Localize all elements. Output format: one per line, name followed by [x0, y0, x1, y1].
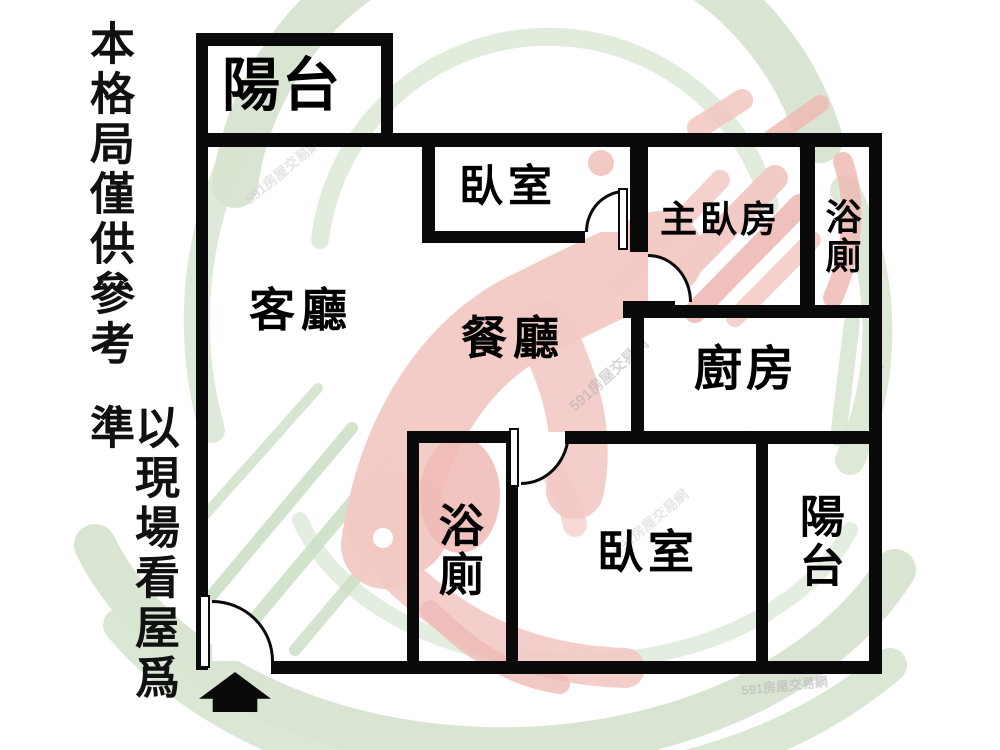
entrance-door-leaf [199, 595, 210, 668]
disclaimer-line-2: 以現場看屋爲準 [85, 404, 175, 750]
hall-door-leaf [509, 428, 519, 487]
wall-balcony-bottom-left [756, 443, 768, 673]
wall-balcony-top [196, 33, 393, 46]
room-label-balcony-top: 陽台 [222, 56, 342, 116]
room-label-living: 客廳 [249, 287, 353, 335]
wall-bedroom-top-right [630, 147, 648, 252]
bedroom-top-door-leaf [618, 188, 628, 250]
wall-balcony-left [196, 33, 208, 145]
room-label-master-bedroom: 主臥房 [660, 202, 780, 240]
wall-left [196, 133, 208, 670]
wall-kitchen-bottom [565, 431, 882, 444]
room-label-bath-top: 浴廁 [821, 198, 858, 276]
wall-bottom [271, 661, 882, 674]
wall-right [869, 133, 882, 674]
room-label-balcony-bottom: 陽台 [794, 493, 841, 591]
wall-master-bath-divider [800, 147, 815, 318]
wall-bath-bottom-top [407, 431, 512, 443]
room-label-bedroom-top: 臥室 [459, 164, 557, 210]
room-label-bedroom-bottom: 臥室 [597, 529, 699, 577]
room-label-dining: 餐廳 [461, 315, 565, 363]
wall-bedroom-top-left [422, 147, 435, 243]
wall-kitchen-left [631, 305, 644, 444]
wall-bath-bottom-left [407, 431, 419, 673]
room-label-kitchen: 廚房 [694, 345, 798, 395]
disclaimer-line-1: 本格局僅供參考 [85, 20, 130, 392]
wall-master-bottom [623, 305, 882, 318]
wall-bedroom-top-bottom [422, 231, 585, 243]
room-label-bath-bottom: 浴廁 [433, 502, 480, 600]
wall-top [196, 133, 882, 147]
floor-plan: 591房屋交易網 591房屋交易網 591房屋交易網 591 591房屋交易網 … [0, 0, 1000, 750]
wall-balcony-right [381, 33, 393, 145]
